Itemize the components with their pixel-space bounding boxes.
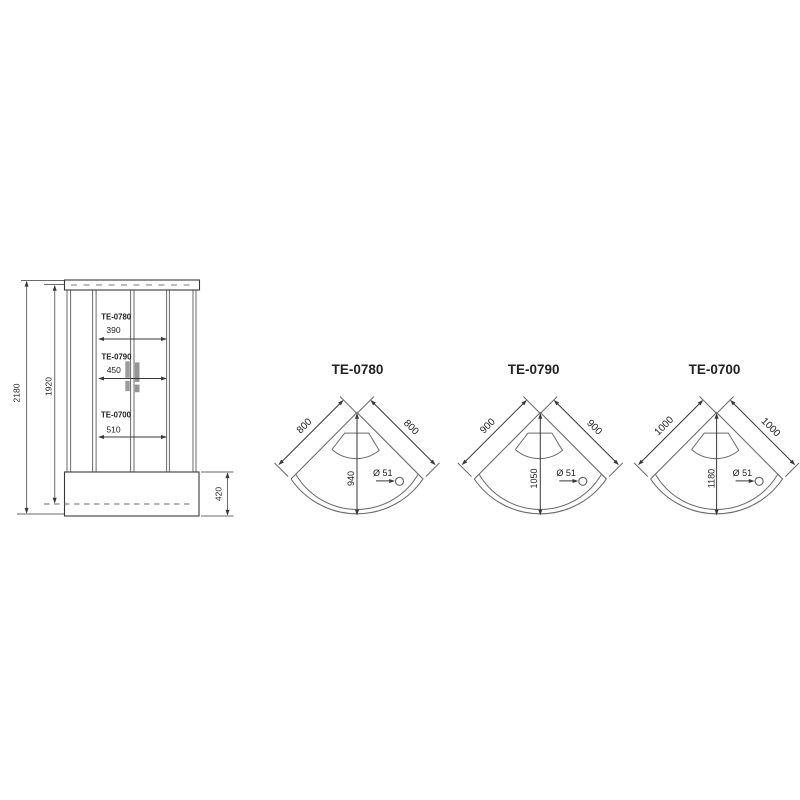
svg-text:800: 800 bbox=[295, 416, 315, 436]
svg-text:420: 420 bbox=[213, 487, 223, 501]
svg-text:390: 390 bbox=[106, 325, 120, 335]
svg-text:800: 800 bbox=[401, 418, 421, 438]
svg-text:TE-0700: TE-0700 bbox=[101, 410, 132, 419]
svg-text:TE-0780: TE-0780 bbox=[101, 313, 132, 322]
svg-text:TE-0700: TE-0700 bbox=[689, 362, 741, 377]
svg-text:510: 510 bbox=[106, 425, 120, 435]
svg-text:1920: 1920 bbox=[43, 377, 53, 396]
svg-text:TE-0790: TE-0790 bbox=[102, 353, 133, 362]
svg-text:1000: 1000 bbox=[759, 416, 783, 440]
svg-text:1180: 1180 bbox=[706, 469, 716, 488]
svg-text:900: 900 bbox=[584, 418, 604, 438]
svg-text:450: 450 bbox=[107, 365, 121, 375]
svg-text:940: 940 bbox=[346, 471, 356, 486]
svg-text:1050: 1050 bbox=[529, 468, 539, 488]
svg-text:2180: 2180 bbox=[11, 383, 21, 402]
svg-text:TE-0780: TE-0780 bbox=[332, 362, 384, 377]
svg-text:TE-0790: TE-0790 bbox=[508, 362, 560, 377]
svg-text:Ø 51: Ø 51 bbox=[373, 468, 393, 478]
svg-text:900: 900 bbox=[478, 416, 498, 436]
svg-text:Ø 51: Ø 51 bbox=[556, 468, 576, 478]
svg-text:1000: 1000 bbox=[653, 414, 677, 438]
svg-text:Ø 51: Ø 51 bbox=[733, 468, 753, 478]
